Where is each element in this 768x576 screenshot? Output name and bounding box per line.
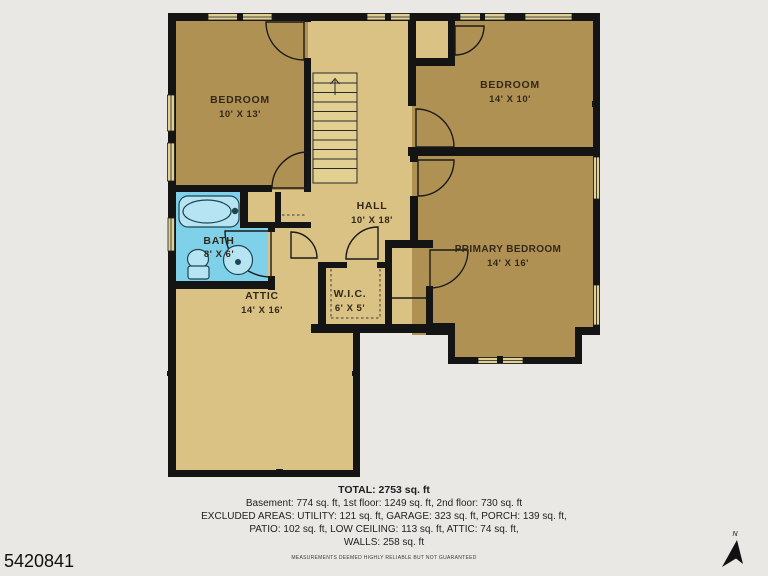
bathtub-basin xyxy=(183,200,231,223)
primary-bedroom-dims: 14' X 16' xyxy=(487,258,529,269)
bedroom2-label: BEDROOM xyxy=(480,79,540,91)
primary-bedroom-label: PRIMARY BEDROOM xyxy=(455,244,562,255)
bedroom1-label: BEDROOM xyxy=(210,94,270,106)
floor-areas-text: Basement: 774 sq. ft, 1st floor: 1249 sq… xyxy=(0,497,768,510)
north-label: N xyxy=(732,531,738,538)
attic-dims: 14' X 16' xyxy=(241,305,283,316)
walls-area-text: WALLS: 258 sq. ft xyxy=(0,536,768,549)
hall-dims: 10' X 18' xyxy=(351,215,393,226)
total-area-text: TOTAL: 2753 sq. ft xyxy=(0,484,768,497)
sink-drain xyxy=(236,260,241,265)
bedroom1-dims: 10' X 13' xyxy=(219,109,261,120)
area-summary: TOTAL: 2753 sq. ft Basement: 774 sq. ft,… xyxy=(0,484,768,565)
bathtub-faucet xyxy=(232,208,237,213)
stairs xyxy=(313,73,357,183)
bath-dims: 8' X 6' xyxy=(204,249,234,260)
hall-label: HALL xyxy=(357,200,388,212)
north-arrow-icon xyxy=(722,540,743,567)
wic-dims: 6' X 5' xyxy=(335,303,365,314)
wic-label: W.I.C. xyxy=(334,288,367,300)
disclaimer-text: MEASUREMENTS DEEMED HIGHLY RELIABLE BUT … xyxy=(0,552,768,565)
attic-label: ATTIC xyxy=(245,290,279,302)
toilet-tank xyxy=(188,266,209,279)
bath-label: BATH xyxy=(203,235,234,247)
floor-plan-page: BEDROOM 10' X 13' BEDROOM 14' X 10' HALL… xyxy=(0,0,768,576)
excluded-areas-text-2: PATIO: 102 sq. ft, LOW CEILING: 113 sq. … xyxy=(0,523,768,536)
bedroom2-dims: 14' X 10' xyxy=(489,94,531,105)
excluded-areas-text-1: EXCLUDED AREAS: UTILITY: 121 sq. ft, GAR… xyxy=(0,510,768,523)
compass: N xyxy=(712,522,752,572)
listing-id: 5420841 xyxy=(4,551,74,572)
